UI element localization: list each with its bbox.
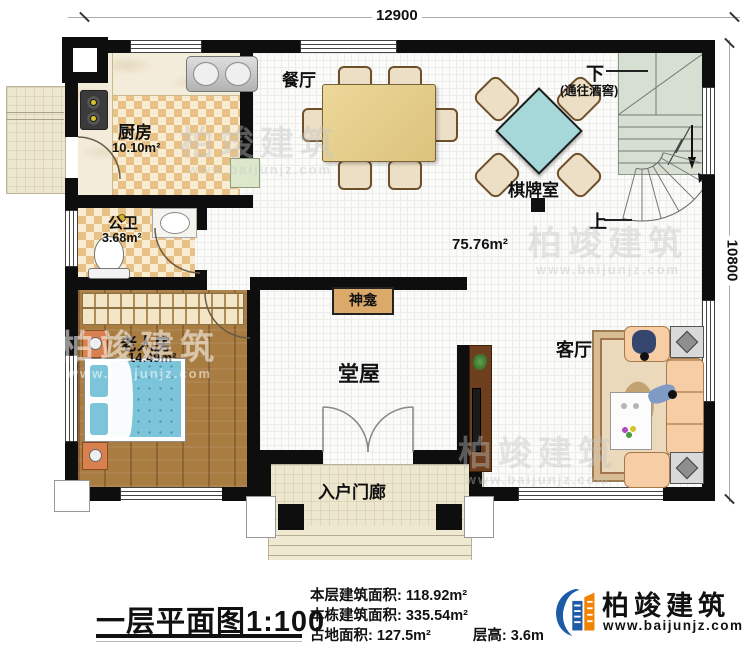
wall [200,40,300,53]
wardrobe-rail [83,307,243,309]
bathroom-label: 公卫 [108,212,138,233]
armchair [624,452,670,488]
window [120,487,224,501]
wall [65,265,78,355]
brand-logo: 柏竣建筑 www.baijunjz.com [552,584,600,645]
nightstand [82,330,108,358]
person-head [640,352,649,361]
chess-room-label: 棋牌室 [508,176,559,201]
stat-floor-area: 本层建筑面积: 118.92m² [310,584,467,605]
porch-steps [268,526,472,560]
dining-chair [338,160,372,190]
top-dimension-value: 12900 [372,7,422,24]
bathroom-area: 3.68m² [102,231,142,245]
tv [472,388,481,452]
pillow [89,402,109,436]
teacup [621,403,627,409]
window [300,40,397,53]
fridge [230,158,260,188]
flowers [621,425,639,439]
pillow [89,364,109,398]
kitchen-sink [186,56,258,92]
wardrobe [82,293,244,325]
bathroom-sink [160,212,190,234]
living-room-label: 客厅 [556,336,592,362]
burner-flame [91,116,96,121]
column-base [54,480,90,512]
toilet-tank [88,268,130,279]
stairs-down-note: (通往酒窖) [560,80,618,99]
lamp [89,449,102,462]
bathroom-counter [152,208,197,238]
porch-column [278,504,304,530]
porch-column [436,504,462,530]
teacup [633,403,639,409]
window [65,355,78,442]
stat-building-area: 本栋建筑面积: 335.54m² [310,604,468,625]
wall [247,290,260,487]
open-area-label: 75.76m² [452,236,508,253]
plant [473,354,487,370]
dining-chair [388,160,422,190]
coffee-table [610,392,652,450]
sofa-main [666,358,704,456]
lamp-table [670,452,704,484]
person [632,330,656,354]
sink-basin [225,62,251,86]
window [702,87,715,175]
wall [65,178,78,210]
nightstand [82,442,108,470]
staircase [618,43,715,245]
person-head [668,390,677,399]
lamp-table [670,326,704,358]
wall [702,40,715,87]
shrine-label: 神龛 [349,292,377,308]
window [130,40,202,53]
hall-label: 堂屋 [338,358,380,388]
brand-website: www.baijunjz.com [603,618,744,633]
kitchen-area: 10.10m² [112,140,160,155]
stairs-down-leader [606,70,648,72]
window [65,210,78,267]
title-underline-thin [96,641,302,642]
tv-wall [457,345,469,452]
brand-logo-icon [552,584,600,640]
dining-table [322,84,436,162]
side-platform [6,86,66,194]
stairs-up-label: 上 [589,208,607,234]
elder-room-area: 14.49m² [128,350,176,365]
side-platform-steps [6,106,64,120]
wall [663,487,715,501]
stove [80,90,108,130]
blanket-fold [111,361,133,437]
wall [395,40,702,53]
corner-column-core [73,48,97,72]
stairs-up-leader [604,219,632,221]
title-underline [96,634,302,638]
stat-land-area-and-height: 占地面积: 127.5m² 层高: 3.6m [310,624,544,645]
wall [78,195,253,208]
window [518,487,665,501]
column-base [464,496,494,538]
sink-basin [193,62,219,86]
floor-plan-canvas: 12900 10800 [0,0,750,650]
wall [702,173,715,300]
lamp [89,337,102,350]
tv-cabinet [469,345,492,472]
burner-flame [91,100,96,105]
shrine-cabinet: 神龛 [332,287,394,315]
right-dimension-value: 10800 [723,236,740,286]
bed [84,358,186,442]
dining-label: 餐厅 [282,66,316,91]
column-base [246,496,276,538]
porch-label: 入户门廊 [318,478,386,503]
